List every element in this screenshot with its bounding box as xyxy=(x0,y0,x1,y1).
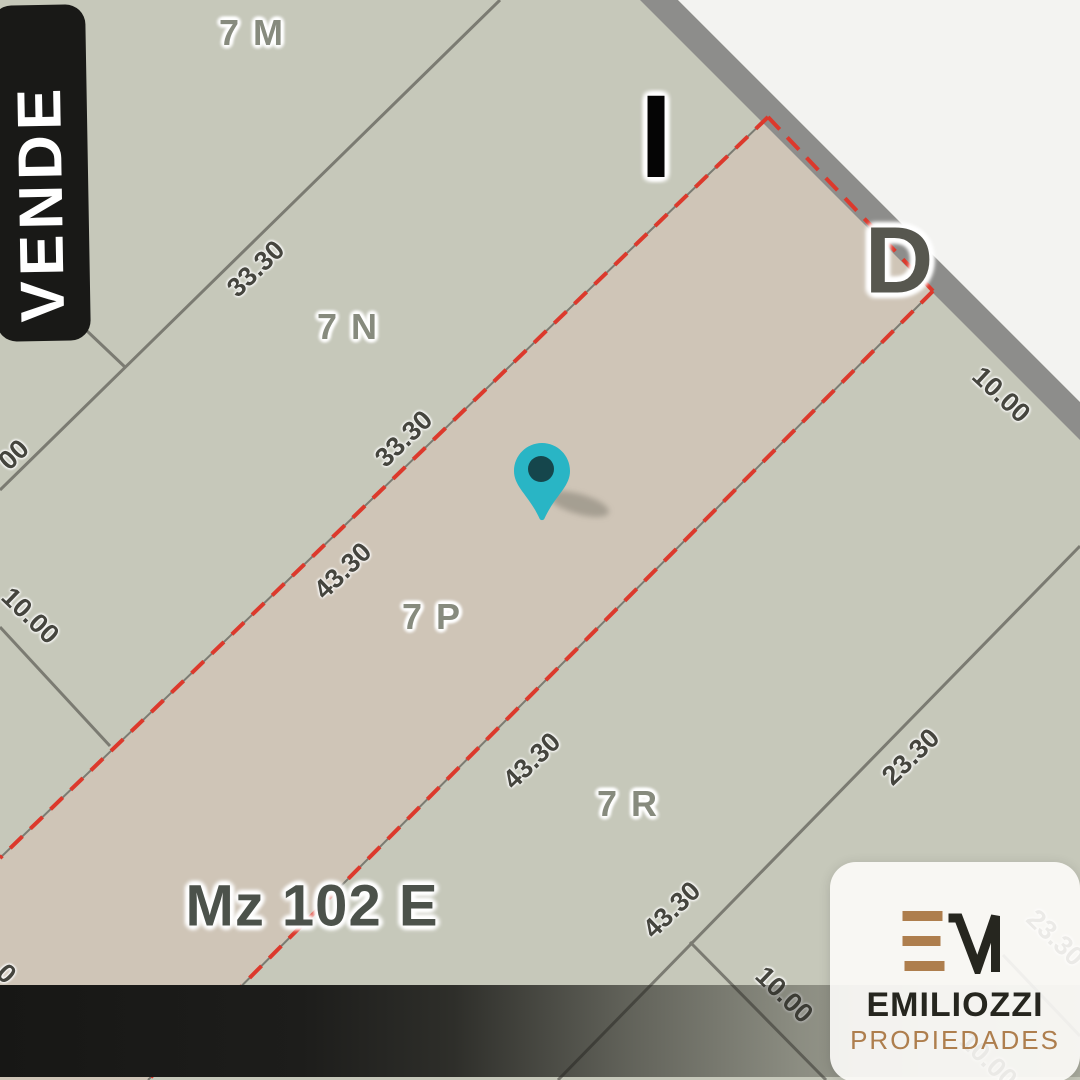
measurement-label: 33.30 xyxy=(369,404,439,473)
agency-logo-card: EMILIOZZI PROPIEDADES xyxy=(830,862,1080,1080)
real-estate-map-flyer: 7 M7 N7 P7 RMz 102 E33.3033.3043.3043.30… xyxy=(0,0,1080,1080)
block-label: Mz 102 E xyxy=(186,873,439,940)
parcel-label-7n: 7 N xyxy=(317,306,379,348)
em-monogram-icon xyxy=(903,910,1008,974)
parcel-label-7r: 7 R xyxy=(597,783,659,825)
measurement-label: 33.30 xyxy=(221,234,291,303)
corner-letter-i: I xyxy=(640,69,673,205)
measurement-label: 23.30 xyxy=(876,722,946,791)
vende-banner-label: VENDE xyxy=(4,83,79,323)
measurement-label: 43.30 xyxy=(308,536,378,605)
brand-tagline: PROPIEDADES xyxy=(830,1025,1080,1056)
brand-name: EMILIOZZI xyxy=(830,986,1080,1025)
vende-banner: VENDE xyxy=(0,4,91,342)
measurement-label: 10.00 xyxy=(0,581,65,650)
parcel-label-7m: 7 M xyxy=(219,12,285,54)
measurement-label: 43.30 xyxy=(637,875,707,944)
parcel-label-7p: 7 P xyxy=(402,596,462,638)
corner-letter-d: D xyxy=(865,207,934,316)
measurement-label: 10.00 xyxy=(966,361,1037,430)
location-pin-icon xyxy=(509,441,575,523)
measurement-label: 00 xyxy=(0,433,36,476)
measurement-label: 43.30 xyxy=(497,726,567,795)
